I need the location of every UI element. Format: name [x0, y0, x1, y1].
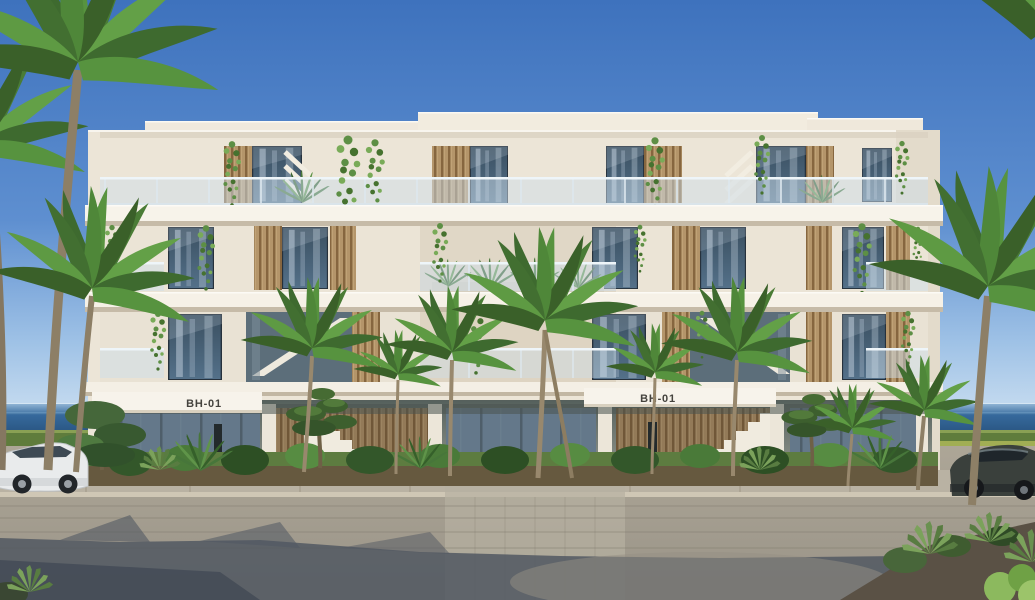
beam-right: BH-01	[584, 388, 776, 407]
scene-canvas: BH-01 BH-01	[0, 0, 1035, 600]
architectural-rendering: BH-01 BH-01	[0, 0, 1035, 600]
slab-1	[85, 205, 943, 226]
block-label-left: BH-01	[186, 398, 222, 410]
window	[700, 227, 746, 289]
window	[168, 314, 222, 380]
block-label-right: BH-01	[640, 393, 676, 405]
window	[282, 227, 328, 289]
balustrade	[100, 177, 928, 206]
